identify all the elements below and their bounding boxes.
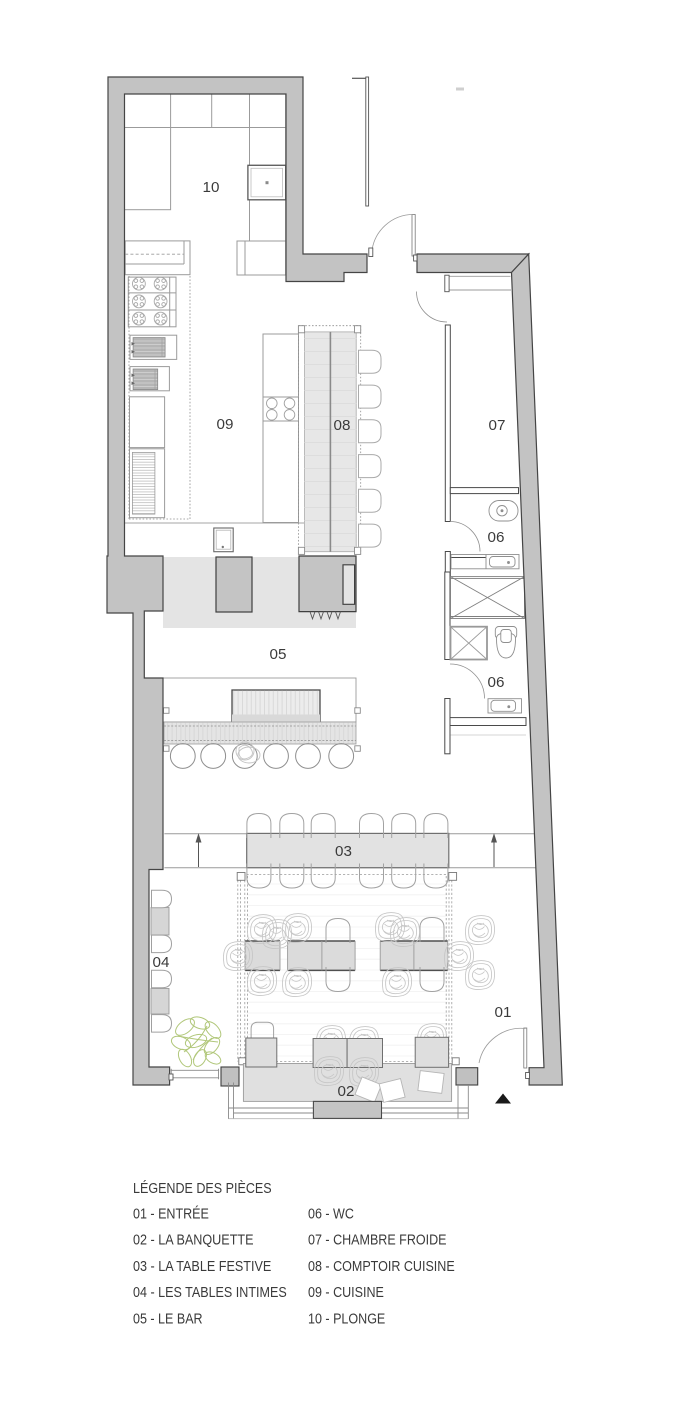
svg-text:01: 01 xyxy=(495,1004,512,1021)
svg-text:05: 05 xyxy=(270,646,287,663)
svg-text:10: 10 xyxy=(203,179,220,196)
svg-text:04 - LES TABLES INTIMES: 04 - LES TABLES INTIMES xyxy=(133,1284,287,1301)
svg-text:01 - ENTRÉE: 01 - ENTRÉE xyxy=(133,1206,209,1223)
svg-text:02: 02 xyxy=(338,1083,355,1100)
svg-text:03 - LA TABLE FESTIVE: 03 - LA TABLE FESTIVE xyxy=(133,1258,271,1275)
svg-text:03: 03 xyxy=(335,843,352,860)
svg-text:09: 09 xyxy=(217,416,234,433)
svg-text:10 - PLONGE: 10 - PLONGE xyxy=(308,1310,385,1327)
svg-text:06 - WC: 06 - WC xyxy=(308,1206,354,1223)
svg-text:09 - CUISINE: 09 - CUISINE xyxy=(308,1284,384,1301)
svg-text:06: 06 xyxy=(488,674,505,691)
svg-text:LÉGENDE DES PIÈCES: LÉGENDE DES PIÈCES xyxy=(133,1180,272,1197)
svg-text:04: 04 xyxy=(153,954,170,971)
svg-text:08: 08 xyxy=(334,417,351,434)
svg-text:06: 06 xyxy=(488,529,505,546)
svg-text:07 - CHAMBRE FROIDE: 07 - CHAMBRE FROIDE xyxy=(308,1232,447,1249)
svg-text:08 - COMPTOIR CUISINE: 08 - COMPTOIR CUISINE xyxy=(308,1258,455,1275)
svg-text:02 - LA BANQUETTE: 02 - LA BANQUETTE xyxy=(133,1232,254,1249)
svg-text:07: 07 xyxy=(489,417,506,434)
svg-text:05 - LE BAR: 05 - LE BAR xyxy=(133,1310,203,1327)
